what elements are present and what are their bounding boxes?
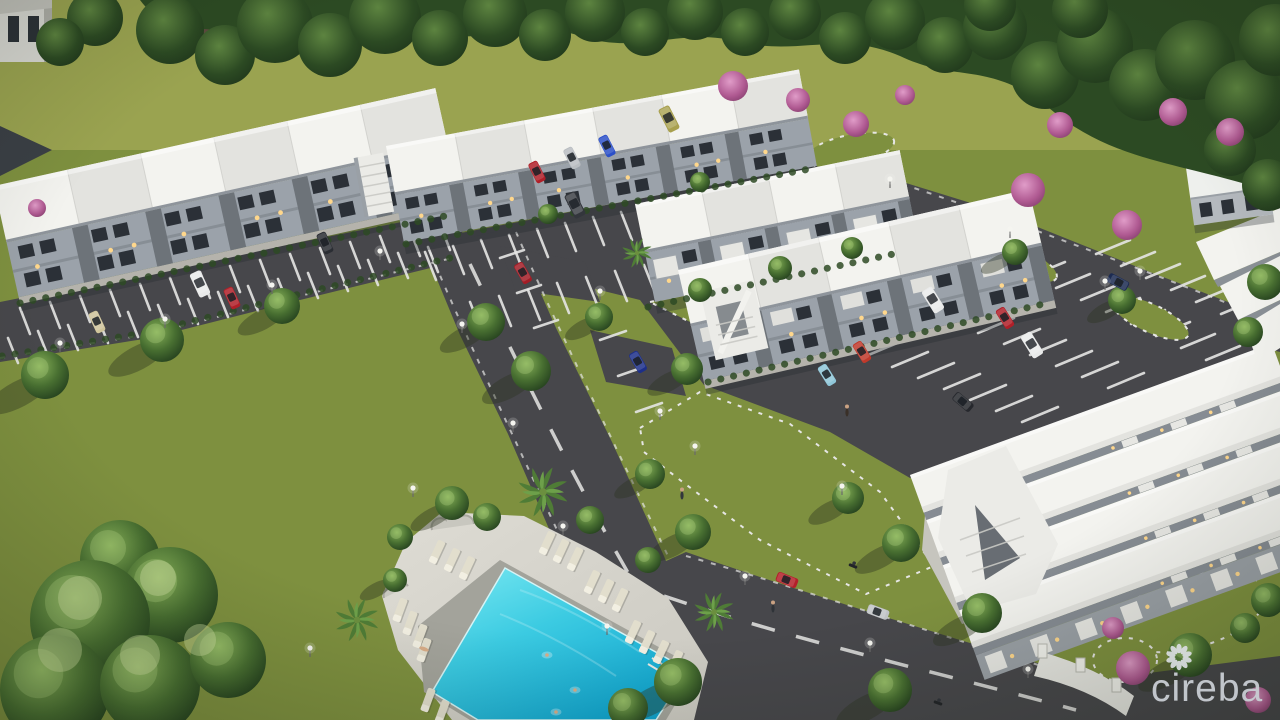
watermark-text: cireba: [1151, 667, 1263, 710]
aerial-rendering: cireba: [0, 0, 1280, 720]
rendering-canvas: cireba: [0, 0, 1280, 720]
vignette-overlay: [0, 0, 1280, 720]
